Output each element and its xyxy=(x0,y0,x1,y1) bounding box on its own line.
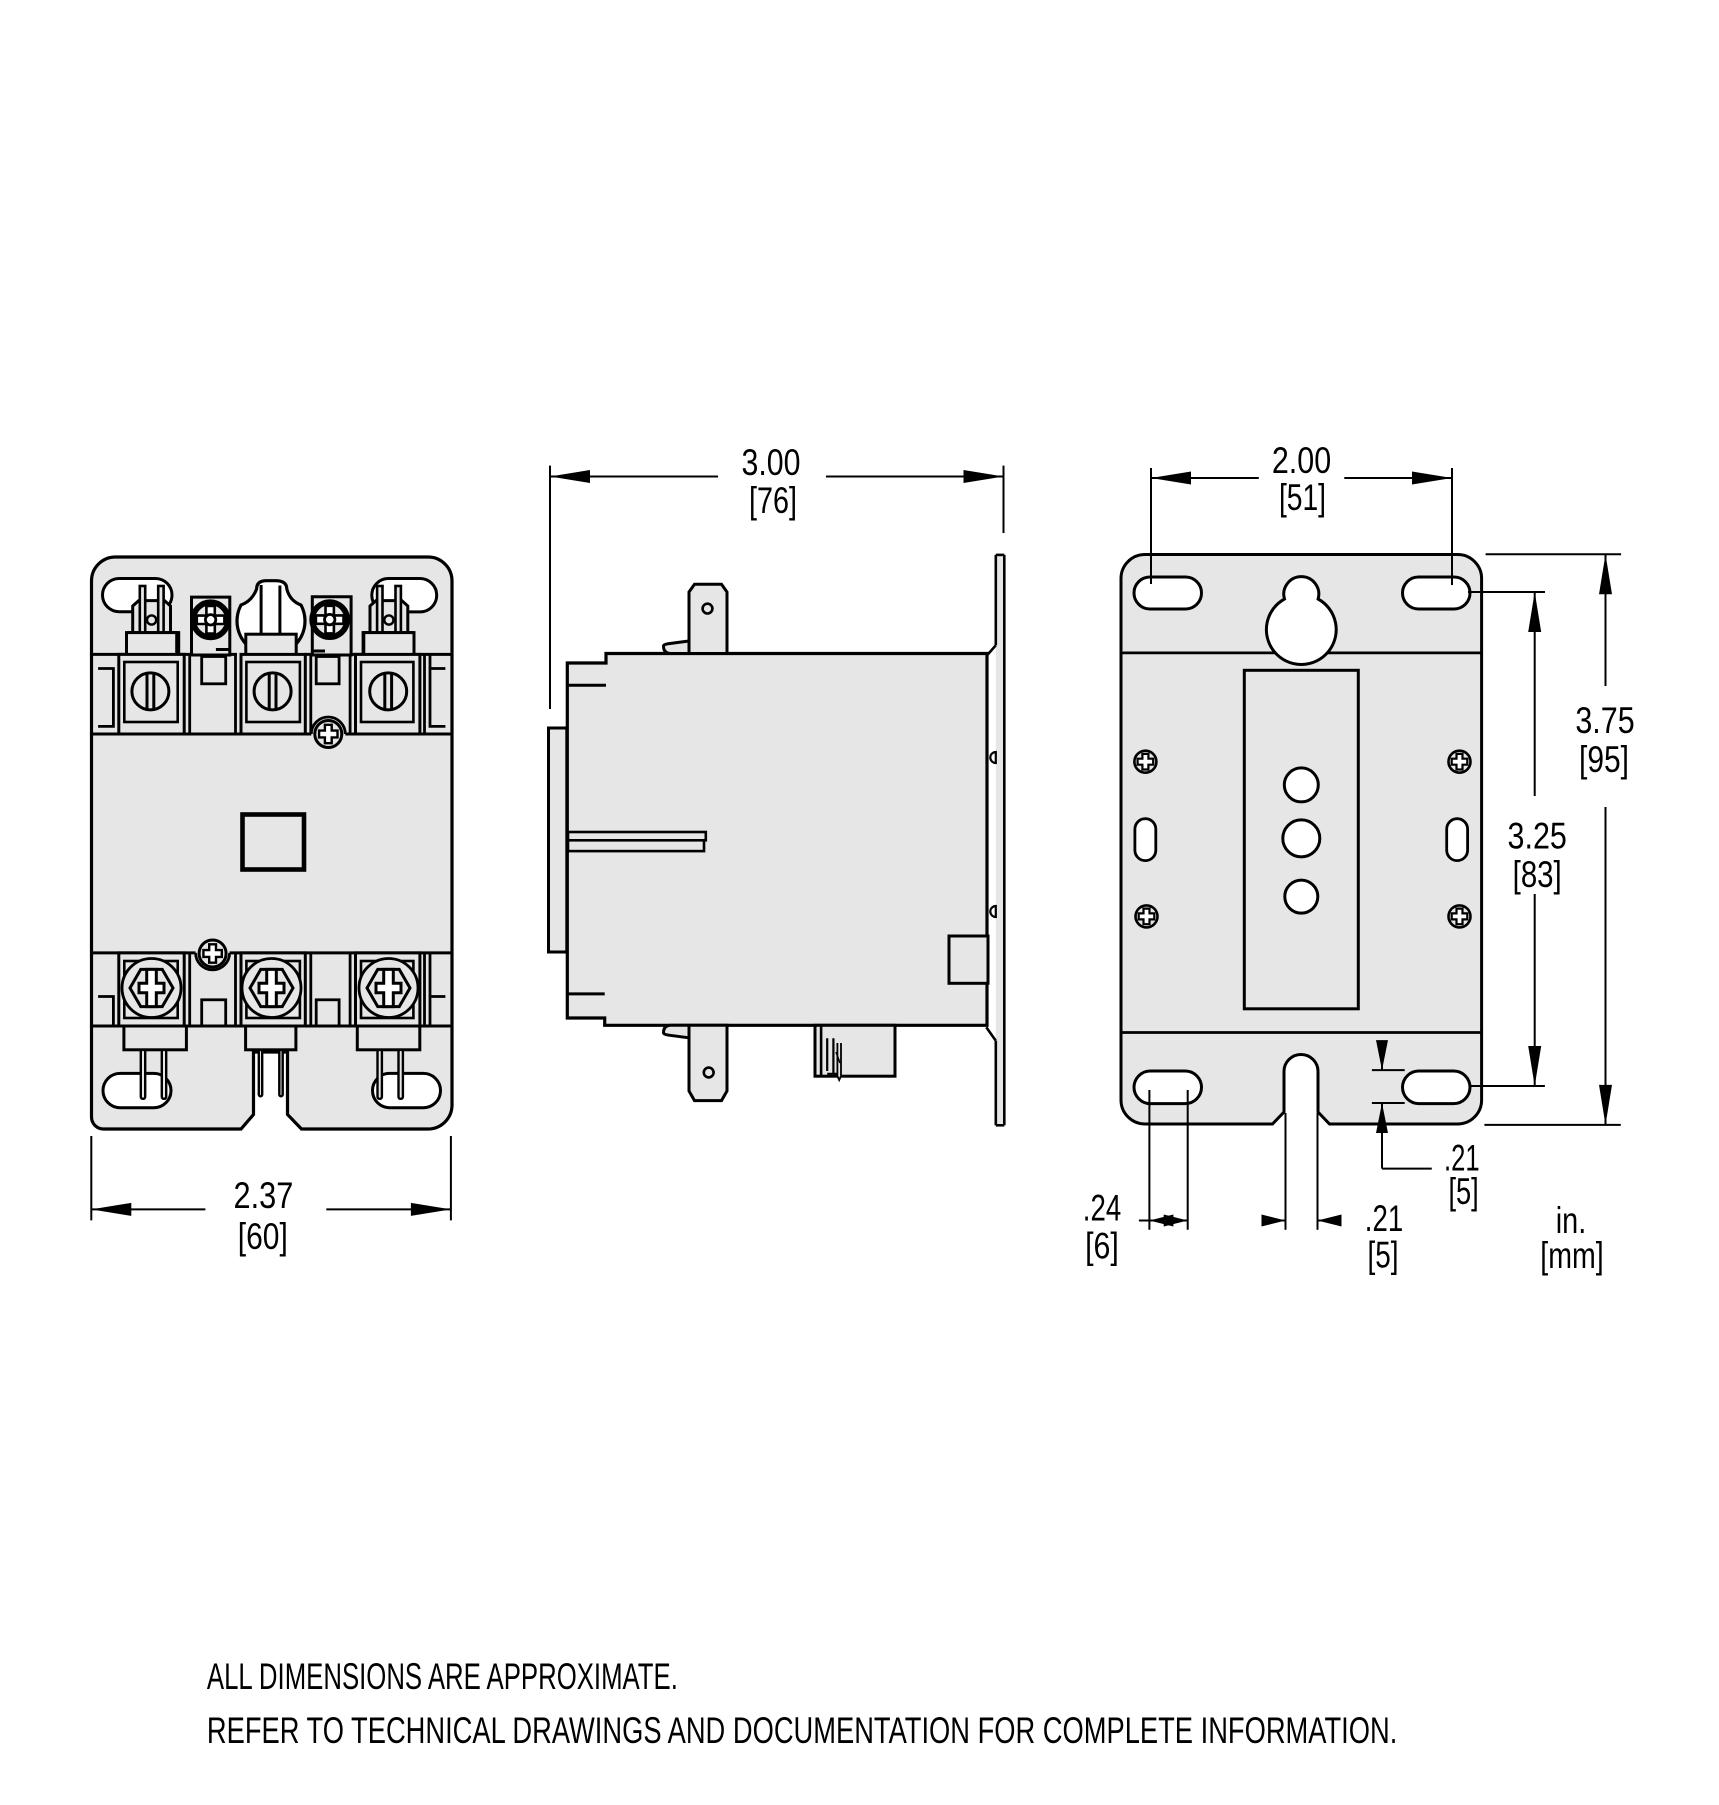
svg-text:[51]: [51] xyxy=(1279,476,1326,518)
svg-text:[mm]: [mm] xyxy=(1540,1234,1603,1276)
svg-text:3.75: 3.75 xyxy=(1575,699,1634,741)
svg-text:ALL DIMENSIONS ARE APPROXIMATE: ALL DIMENSIONS ARE APPROXIMATE. xyxy=(207,1655,678,1697)
svg-text:[6]: [6] xyxy=(1085,1225,1119,1267)
svg-text:[5]: [5] xyxy=(1368,1234,1399,1276)
svg-text:[60]: [60] xyxy=(238,1215,288,1257)
svg-text:[83]: [83] xyxy=(1513,853,1562,895)
svg-text:[95]: [95] xyxy=(1579,738,1629,780)
svg-text:.24: .24 xyxy=(1083,1187,1121,1229)
svg-text:2.37: 2.37 xyxy=(234,1174,294,1216)
svg-text:[5]: [5] xyxy=(1448,1170,1478,1212)
svg-text:3.00: 3.00 xyxy=(742,441,801,483)
svg-text:2.00: 2.00 xyxy=(1272,439,1331,481)
svg-text:3.25: 3.25 xyxy=(1508,814,1567,856)
svg-text:[76]: [76] xyxy=(749,479,797,521)
svg-text:REFER TO TECHNICAL DRAWINGS AN: REFER TO TECHNICAL DRAWINGS AND DOCUMENT… xyxy=(207,1709,1397,1751)
